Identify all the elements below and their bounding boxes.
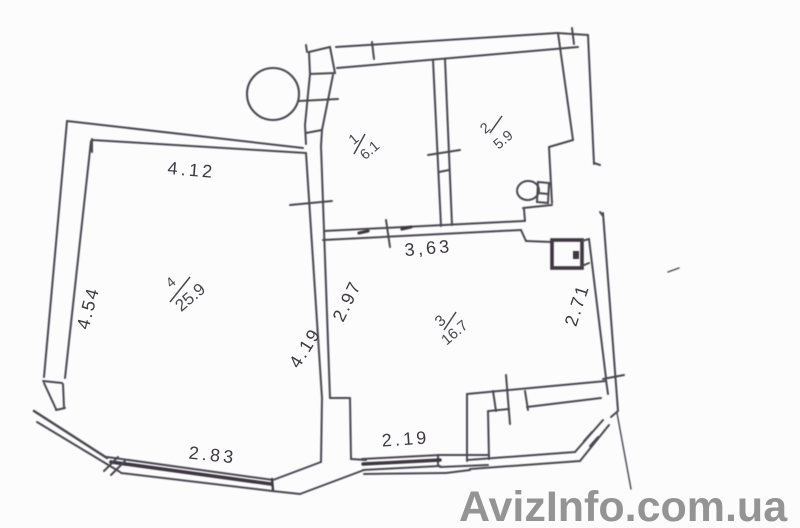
svg-text:1: 1: [346, 131, 362, 148]
svg-text:2: 2: [477, 120, 493, 137]
svg-text:5.9: 5.9: [491, 128, 517, 153]
svg-text:AvizInfo.com.ua: AvizInfo.com.ua: [459, 483, 788, 528]
svg-text:3,63: 3,63: [404, 236, 453, 260]
svg-text:2.19: 2.19: [381, 427, 430, 450]
svg-text:4.54: 4.54: [73, 285, 103, 332]
svg-text:4.12: 4.12: [167, 158, 216, 182]
svg-text:4: 4: [162, 273, 178, 290]
svg-text:2.97: 2.97: [329, 277, 366, 324]
svg-text:2.83: 2.83: [188, 443, 238, 468]
svg-text:2.71: 2.71: [561, 281, 593, 328]
